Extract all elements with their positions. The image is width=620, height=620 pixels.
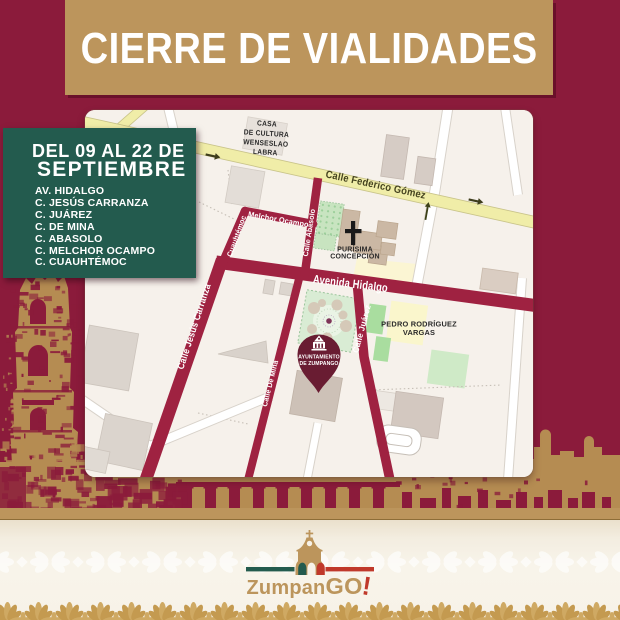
svg-text:CASA: CASA: [257, 120, 277, 129]
svg-text:Zumpan: Zumpan: [247, 577, 326, 599]
svg-text:PURÍSIMA: PURÍSIMA: [337, 245, 373, 254]
svg-text:CONCEPCIÓN: CONCEPCIÓN: [330, 252, 379, 261]
svg-text:GO: GO: [326, 573, 363, 599]
svg-text:AYUNTAMIENTO: AYUNTAMIENTO: [298, 354, 339, 360]
svg-text:DE ZUMPANGO: DE ZUMPANGO: [299, 361, 338, 367]
svg-text:LABRA: LABRA: [253, 149, 278, 158]
svg-text:VARGAS: VARGAS: [403, 328, 435, 337]
